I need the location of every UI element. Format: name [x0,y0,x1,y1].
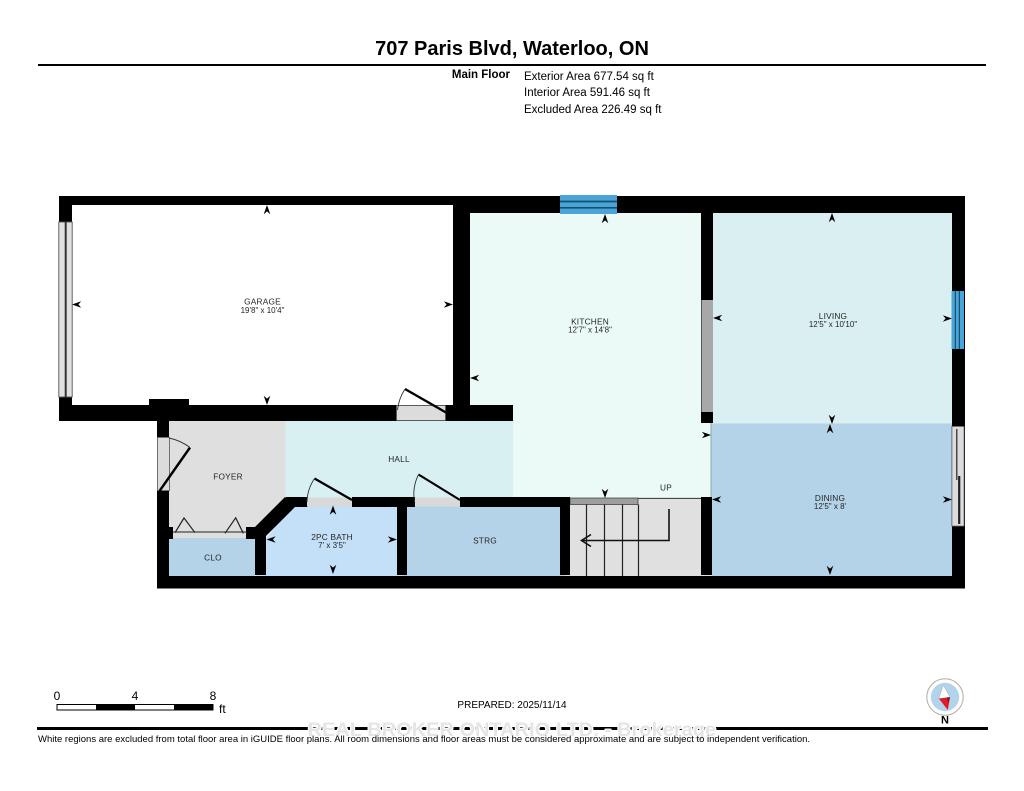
svg-text:HALL: HALL [388,454,410,464]
svg-text:12'5" x 10'10": 12'5" x 10'10" [809,320,857,329]
svg-text:FOYER: FOYER [213,471,243,481]
svg-text:7' x 3'5": 7' x 3'5" [318,541,346,550]
svg-text:12'7" x 14'8": 12'7" x 14'8" [568,326,612,335]
svg-text:STRG: STRG [473,536,497,546]
svg-text:12'5" x 8': 12'5" x 8' [814,502,847,511]
svg-text:CLO: CLO [204,553,222,563]
svg-text:UP: UP [660,483,672,493]
svg-text:19'8" x 10'4": 19'8" x 10'4" [241,306,285,315]
